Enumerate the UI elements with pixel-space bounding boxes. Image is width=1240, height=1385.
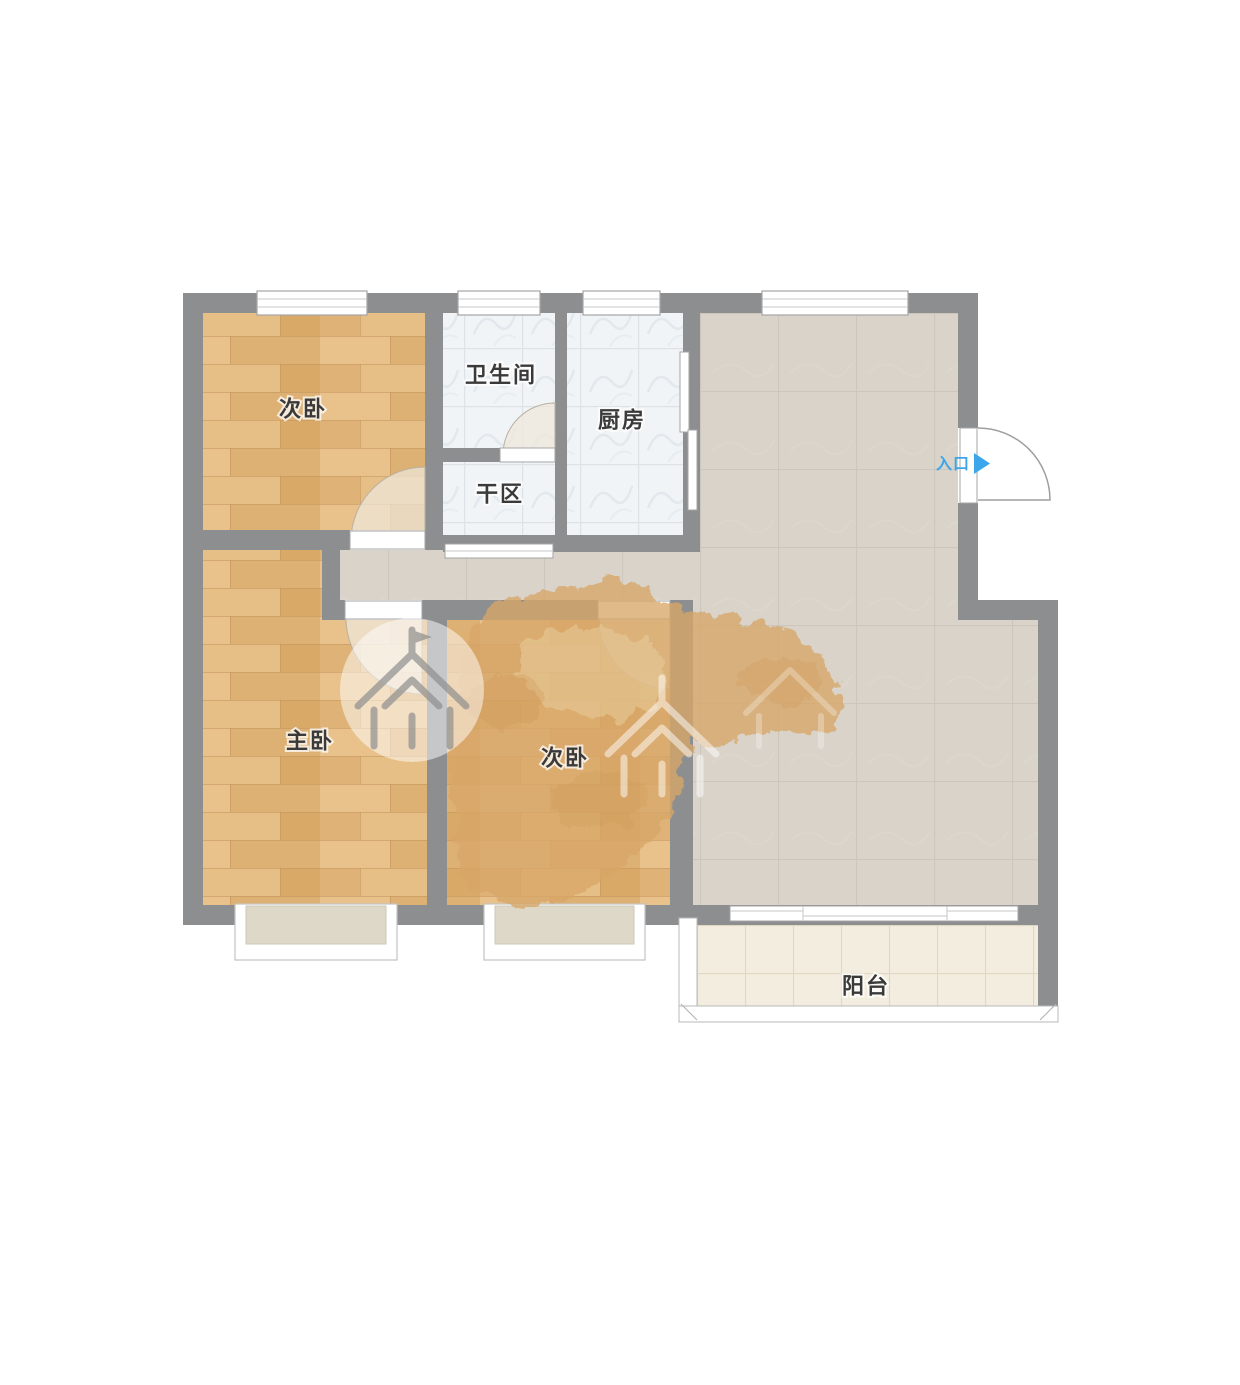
wall-right-lower	[1038, 600, 1058, 1006]
window-kitchen	[583, 291, 660, 315]
balcony-rail-bottom	[679, 1006, 1058, 1022]
balcony-sliding-door	[730, 906, 1018, 921]
bay-window-master-bedroom	[235, 904, 397, 960]
wall-left	[183, 293, 203, 925]
room-label-kitchen: 厨房	[598, 408, 646, 433]
entrance-label: 入口	[936, 455, 970, 473]
wall-bathroom-dry	[443, 448, 500, 462]
room-label-master-bedroom: 主卧	[286, 729, 334, 754]
wall-bedroom-bathroom	[425, 313, 443, 550]
entrance-arrow-icon	[974, 453, 990, 474]
dry-area-threshold	[445, 544, 553, 558]
bay-window-bedroom-middle	[484, 904, 645, 960]
house-watermark-icon	[340, 618, 484, 762]
room-label-bedroom-middle: 次卧	[541, 746, 589, 771]
wall-dry-kitchen	[555, 313, 567, 552]
window-living-room	[762, 291, 908, 315]
room-label-bathroom: 卫生间	[465, 363, 537, 388]
window-bedroom-top-left	[257, 291, 367, 315]
room-label-dry-area: 干区	[476, 482, 524, 507]
entrance-door	[960, 428, 1050, 503]
wall-bedroom-top-bottom-b	[425, 530, 443, 550]
wall-right-upper-a	[958, 293, 978, 428]
floor-plan: 次卧 卫生间 厨房 干区 主卧 次卧 阳台 入口	[0, 0, 1240, 1385]
entrance-marker: 入口	[936, 453, 990, 474]
wall-hallway-bottom-a	[322, 600, 345, 620]
room-label-balcony: 阳台	[842, 974, 890, 999]
floor-plan-page: 次卧 卫生间 厨房 干区 主卧 次卧 阳台 入口	[0, 0, 1240, 1385]
wall-bedroom-top-bottom-a	[203, 530, 350, 550]
balcony-rail-left	[679, 918, 697, 1008]
living-room-floor-upper	[700, 313, 958, 600]
window-bathroom	[458, 291, 540, 315]
room-label-bedroom-top-left: 次卧	[279, 397, 327, 422]
